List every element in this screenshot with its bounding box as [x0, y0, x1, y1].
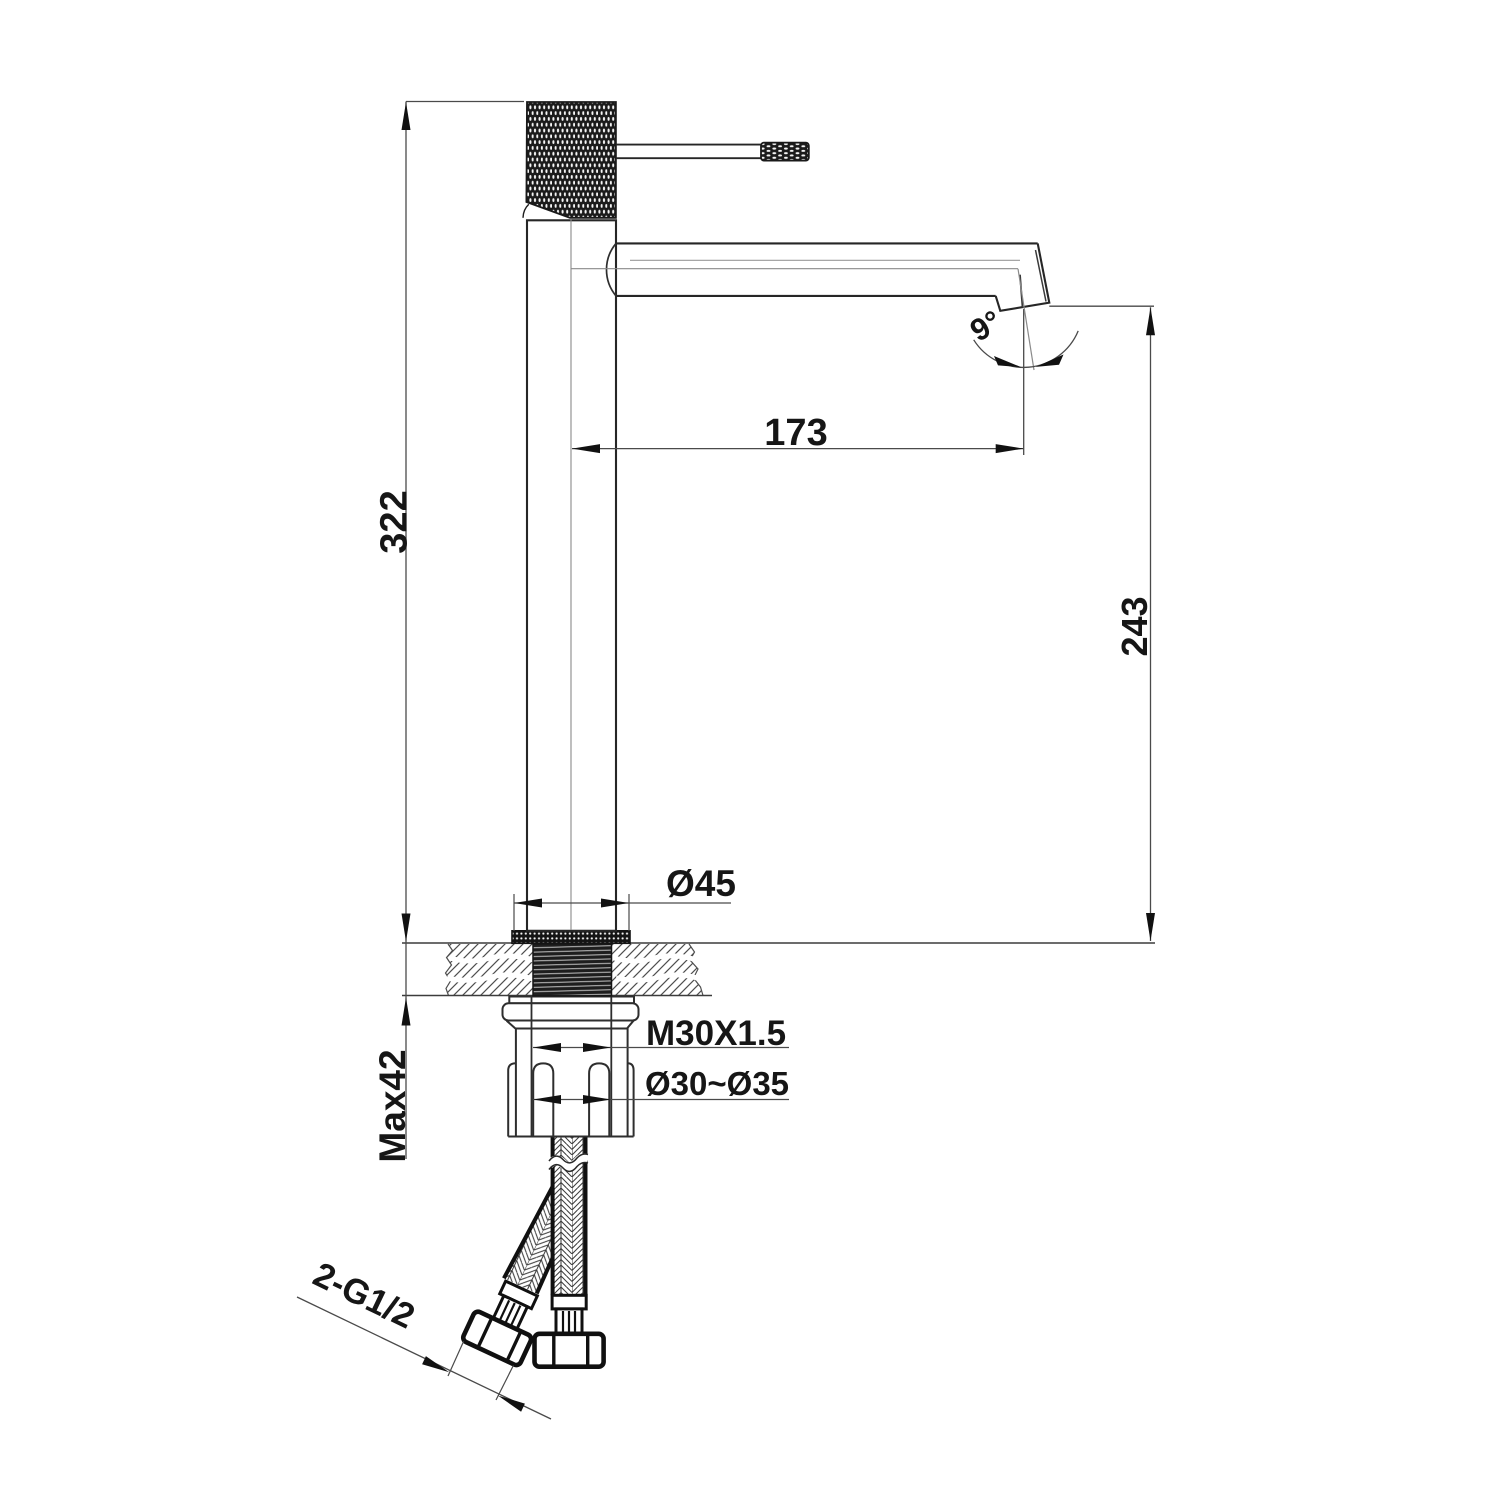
svg-text:173: 173	[764, 412, 827, 454]
svg-text:243: 243	[1114, 596, 1155, 656]
svg-text:Max42: Max42	[372, 1049, 413, 1162]
svg-text:Ø30~Ø35: Ø30~Ø35	[645, 1065, 789, 1102]
svg-text:M30X1.5: M30X1.5	[646, 1014, 786, 1053]
svg-text:Ø45: Ø45	[666, 863, 736, 904]
svg-text:322: 322	[374, 490, 416, 553]
